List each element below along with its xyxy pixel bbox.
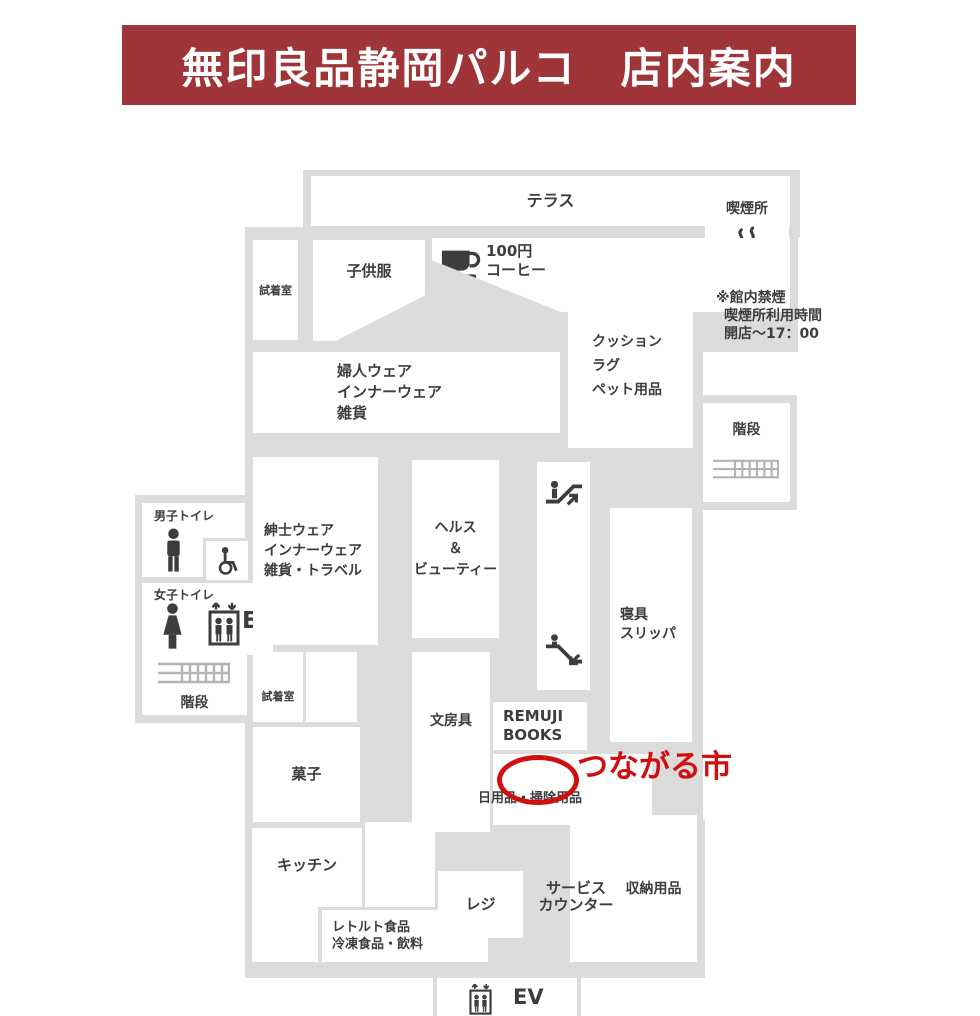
elevator-icon bbox=[207, 599, 241, 647]
stairs-icon bbox=[158, 660, 230, 688]
accessible-toilet-box bbox=[203, 538, 248, 580]
room-escalators bbox=[537, 462, 590, 690]
room-open-area-2 bbox=[365, 822, 435, 907]
room-label-stairs-upper: 階段 bbox=[703, 403, 790, 502]
room-label-fitting-room-lower: 試着室 bbox=[253, 652, 303, 722]
woman-icon bbox=[159, 603, 186, 650]
service-counter-label: サービスカウンター bbox=[521, 880, 631, 914]
room-label-remuji-books: REMUJIBOOKS bbox=[493, 702, 587, 750]
room-label-health-beauty: ヘルス＆ビューティー bbox=[412, 460, 499, 638]
room-label-womens-wear: 婦人ウェアインナーウェア雑貨 bbox=[253, 352, 560, 433]
page-title: 無印良品静岡パルコ 店内案内 bbox=[181, 35, 796, 96]
tsunagaru-market-label: つながる市 bbox=[577, 748, 732, 786]
room-label-bedding-slippers: 寝具スリッパ bbox=[610, 508, 692, 742]
tsunagaru-market-marker bbox=[497, 755, 579, 805]
room-bedding-slippers: 寝具スリッパ bbox=[610, 508, 692, 742]
room-mens-toilet: 男子トイレ bbox=[142, 503, 245, 577]
room-stairs-lower-left: 階段 bbox=[142, 653, 247, 715]
room-fitting-room-lower: 試着室 bbox=[253, 652, 303, 722]
room-cushion-rug-pet: クッションラグペット用品 bbox=[568, 283, 693, 448]
room-womens-wear: 婦人ウェアインナーウェア雑貨 bbox=[253, 352, 560, 433]
wheelchair-icon bbox=[214, 546, 240, 575]
store-floor-map: 無印良品静岡パルコ 店内案内 テラス喫煙所試着室子供服100円コーヒー婦人ウェア… bbox=[0, 0, 980, 1016]
room-stairs-upper: 階段 bbox=[703, 403, 790, 502]
room-label-sweets: 菓子 bbox=[253, 727, 360, 822]
escalator-up-icon bbox=[543, 474, 585, 512]
elevator-icon bbox=[467, 982, 494, 1015]
room-label-fitting-room-upper: 試着室 bbox=[253, 240, 298, 340]
room-sweets: 菓子 bbox=[253, 727, 360, 822]
room-remuji-books: REMUJIBOOKS bbox=[493, 702, 587, 750]
room-open-area bbox=[306, 652, 357, 722]
room-register: レジ bbox=[438, 871, 523, 938]
room-label-cushion-rug-pet: クッションラグペット用品 bbox=[568, 283, 693, 448]
elevator-badge: EV bbox=[513, 987, 544, 1008]
room-fitting-room-upper: 試着室 bbox=[253, 240, 298, 340]
escalator-down-icon bbox=[543, 634, 585, 672]
header-banner: 無印良品静岡パルコ 店内案内 bbox=[122, 25, 856, 105]
room-mens-wear: 紳士ウェアインナーウェア雑貨・トラベル bbox=[253, 457, 378, 645]
no-smoking-note-label: ※館内禁煙喫煙所利用時間開店～17：00 bbox=[716, 289, 822, 343]
room-label-mens-wear: 紳士ウェアインナーウェア雑貨・トラベル bbox=[253, 457, 378, 645]
room-elevator-lower: EV bbox=[437, 978, 577, 1016]
room-health-beauty: ヘルス＆ビューティー bbox=[412, 460, 499, 638]
room-label-register: レジ bbox=[438, 871, 523, 938]
man-icon bbox=[162, 528, 185, 573]
stairs-icon bbox=[713, 455, 779, 485]
